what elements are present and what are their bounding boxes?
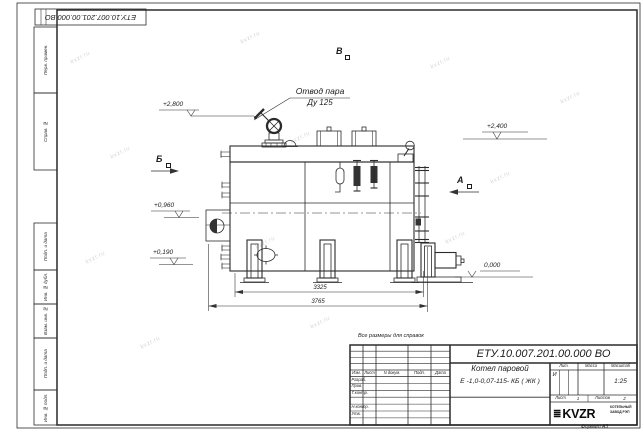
drawing-sheet: kvzr.ru kvzr.ru kvzr.ru kvzr.ru kvzr.ru … [0,0,644,430]
company-line2: ЗАВОД РЭП [610,411,629,415]
elevation-2800: +2,800 [163,101,183,108]
corner-designation: ЕТУ.10.007.201.00.000 ВО [35,9,146,25]
title-designation: ЕТУ.10.007.201.00.000 ВО [450,346,637,363]
boiler-top-header [230,146,414,162]
logo-waves-icon: ≣ [553,409,561,420]
view-arrows [151,168,479,194]
dimension-3325: 3325 [300,285,340,292]
elevation-2400: +2,400 [487,123,507,130]
staff-razrab: Разраб. [352,378,367,383]
elevation-0960: +0,960 [154,202,174,209]
margin-column-inv-podl: Инв. № подл. [34,390,57,425]
dimension-3765: 3765 [298,299,338,306]
margin-column-podp-data-2: Подп. и дата [34,338,57,390]
damper-lever [398,141,414,162]
sheets-value: 2 [616,396,633,401]
format-label: Формат А3 [552,425,637,430]
view-marker-flag [467,184,472,189]
steam-outlet-callout-line2: Ду 125 [287,99,353,108]
product-name-line2: Е -1,0-0,07-115- КБ ( ЖК ) [452,378,548,385]
logo-text: KVZR [562,407,595,421]
fan-assembly [411,243,473,283]
margin-column-podp-data-1: Подп. и дата [34,223,57,270]
view-marker-b: Б [156,155,162,165]
reference-note: Все размеры для справок [358,333,424,339]
header-podp: Подп. [408,371,431,376]
elevation-0000: 0,000 [484,262,500,269]
view-marker-flag [345,55,350,60]
sheet-value: 1 [571,396,585,401]
margin-column-sprav-no: Справ. № [34,93,57,170]
view-marker-flag [166,163,171,168]
staff-prov: Пров. [352,384,363,389]
sheets-label: Листов [589,396,616,401]
sheet-label: Лист [551,396,570,401]
view-marker-v: В [336,47,343,57]
product-name-line1: Котел паровой [452,365,548,374]
boiler-body [222,162,421,271]
staff-nkontr: Н.контр. [352,405,369,410]
elevation-marks [150,110,547,277]
hatch-boxes [317,127,376,146]
header-izm: Изм. [350,371,363,376]
elevation-0190: +0,190 [153,249,173,256]
safety-valve [254,109,286,147]
air-duct [415,166,429,243]
burner-box [206,210,230,241]
margin-column-vzam-inv: Взам. инв. № [34,304,57,338]
margin-column-inv-dubl: Инв. № дубл. [34,270,57,304]
staff-utv: Утв. [352,412,361,417]
lit-label: Лит. [550,364,578,369]
steam-outlet-callout-line1: Отвод пара [287,87,353,96]
lit-value: И [550,372,559,378]
header-ndoc: N докум. [376,371,408,376]
view-marker-a: А [457,176,464,186]
scale-value: 1:25 [604,378,637,385]
header-date: Дата [431,371,450,376]
margin-column-perv-primen: Перв. примен. [34,27,57,93]
staff-tkontr: Т.контр. [352,391,369,396]
mass-label: Масса [578,364,604,369]
header-list: Лист [363,371,376,376]
level-gauges [335,161,378,193]
kvzr-logo: ≣KVZR [553,405,595,423]
scale-label: Масштаб [604,364,637,369]
